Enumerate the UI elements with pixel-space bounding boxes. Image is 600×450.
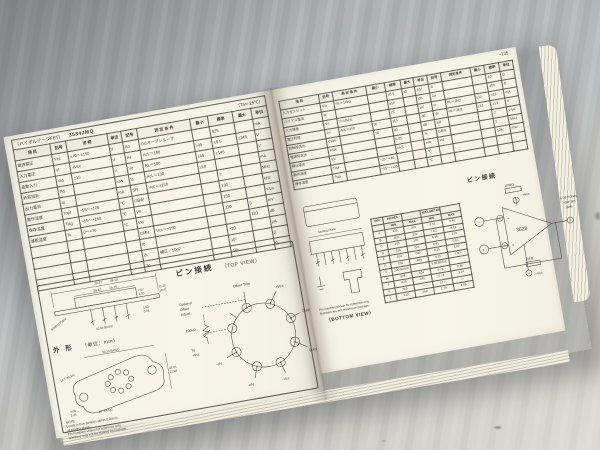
offset-trim-label: Offset Trim [232, 282, 250, 289]
feedback-resistor-value: 10kΩ [525, 256, 534, 261]
pot-zigzag [202, 325, 211, 345]
offset-resistor-value: 100kΩ [504, 182, 515, 188]
pin-numbers: 8 7 6 5 4 3 2 1 [228, 299, 299, 372]
bottom-dim-lines [85, 344, 172, 403]
table-cell [513, 140, 528, 151]
svg-text:−: − [477, 220, 481, 225]
noninverting-input-sign: + [511, 242, 515, 247]
table-cell [484, 145, 500, 156]
opamp-circuit-diagram: 3628 − + 100kΩ 10kΩ [460, 166, 594, 289]
table-cell: −55～+125 [379, 163, 399, 175]
cap-package-drawing [343, 269, 365, 294]
pin-number-2: 2 [235, 350, 238, 354]
pin-number-4: 4 [279, 360, 282, 364]
optional-trim-note: ＊OPTIONAL OFFSET TRIM [559, 193, 580, 210]
right-page-lower: Seating Plane [297, 164, 560, 365]
adjust-dashed-wires [202, 300, 250, 333]
to-label: To [191, 348, 195, 353]
offset-adjust-network: Optional Offset Adjust 100kΩ To +Vcc [179, 292, 254, 359]
dim-cap-width2: 25.15 [109, 285, 118, 290]
pin-number-6: 6 [290, 316, 293, 320]
right-page: −135 項 目記号測 定 条 件最小標準最大単位記号測定条件最小標準単位 入力… [271, 47, 565, 374]
adjust-label-3: Adjust [181, 311, 191, 317]
open-book: （ハイボルテージFET） 3584JMQ （Ta＝25℃） 項 目記号定 格単位… [3, 43, 588, 440]
left-page: （ハイボルテージFET） 3584JMQ （Ta＝25℃） 項 目記号定 格単位… [3, 90, 324, 439]
circuit-pin-4: 4 [528, 271, 531, 275]
pin-number-7: 7 [269, 302, 272, 306]
vcc-plus-label: +Vcc [275, 284, 284, 289]
vcc-plus-label: +Vcc [522, 192, 531, 197]
source-symbols: − + [474, 217, 489, 255]
svg-text:+: + [482, 247, 486, 252]
package-top-view [303, 198, 360, 227]
dip-package-drawings: Seating Plane [297, 194, 380, 308]
pot-value-label: 100kΩ [186, 328, 197, 334]
to-vcc-label: +Vcc [192, 352, 201, 357]
trim-note-3: TRIM [565, 204, 573, 209]
vcc-minus-label: −Vcc [281, 376, 290, 381]
pin-number-3: 3 [256, 365, 259, 369]
table-cell: ℃ [427, 155, 442, 166]
dim-lead2: 0.51 [143, 308, 150, 313]
dim-bottom-h2: 21.08 [169, 369, 177, 374]
dim-top-width: 39.37 [94, 280, 103, 285]
page-number: −135 [498, 50, 509, 57]
package-side-view [309, 232, 367, 267]
photo-scene: （ハイボルテージFET） 3584JMQ （Ta＝25℃） 項 目記号定 格単位… [0, 0, 600, 450]
seating-plane-label: Seating Plane [50, 317, 67, 332]
inverting-input-sign: − [507, 215, 511, 220]
pin-connection-section: ピン接続 （TOP VIEW） [164, 242, 318, 410]
dim-top-width2: 38.10 [110, 278, 119, 283]
can-tab [230, 313, 236, 319]
pin-pads [224, 295, 303, 374]
dim-left-diag: 12.7 BASIC [60, 373, 77, 383]
dimension-table: DIMINCHESMILLIMETERSMINMAXMINMAX A.335.3… [370, 203, 474, 303]
table-cell [498, 142, 514, 153]
pin-number-1: 1 [231, 327, 234, 331]
in-minus-label: −IN [216, 362, 223, 367]
vcc-minus-label: −Vcc [535, 271, 544, 276]
pin-number-8: 8 [245, 306, 248, 310]
table-cell [414, 157, 429, 168]
seating-plane-label: Seating Plane [317, 227, 336, 234]
opamp-part-number: 3628 [516, 226, 528, 234]
outline-title: 外 形 [53, 344, 75, 355]
dim-height2: 10.41 [159, 287, 167, 292]
table-cell [441, 153, 456, 164]
circuit-wires [481, 189, 575, 276]
table-cell: Tstg [332, 172, 347, 183]
ground-symbol [315, 276, 325, 290]
package-lid-line [304, 203, 357, 212]
outline-section: 39.37 38.10 26.67 25.15 [38, 264, 190, 432]
can-circle [227, 298, 301, 372]
dim-cap-height2: 2.03 [138, 291, 145, 296]
circuit-pin-7: 7 [515, 198, 518, 202]
table-cell: L [384, 294, 397, 302]
circuit-pin-6: 6 [569, 218, 572, 222]
opamp-triangle [502, 200, 556, 255]
dim-cap-width: 26.67 [93, 288, 102, 293]
in-plus-label: +IN [248, 382, 255, 387]
table-cell [398, 160, 415, 172]
dim-pin-d2: 3.43 [70, 413, 77, 418]
pin-number-5: 5 [294, 340, 297, 344]
pin-circles [103, 367, 136, 396]
